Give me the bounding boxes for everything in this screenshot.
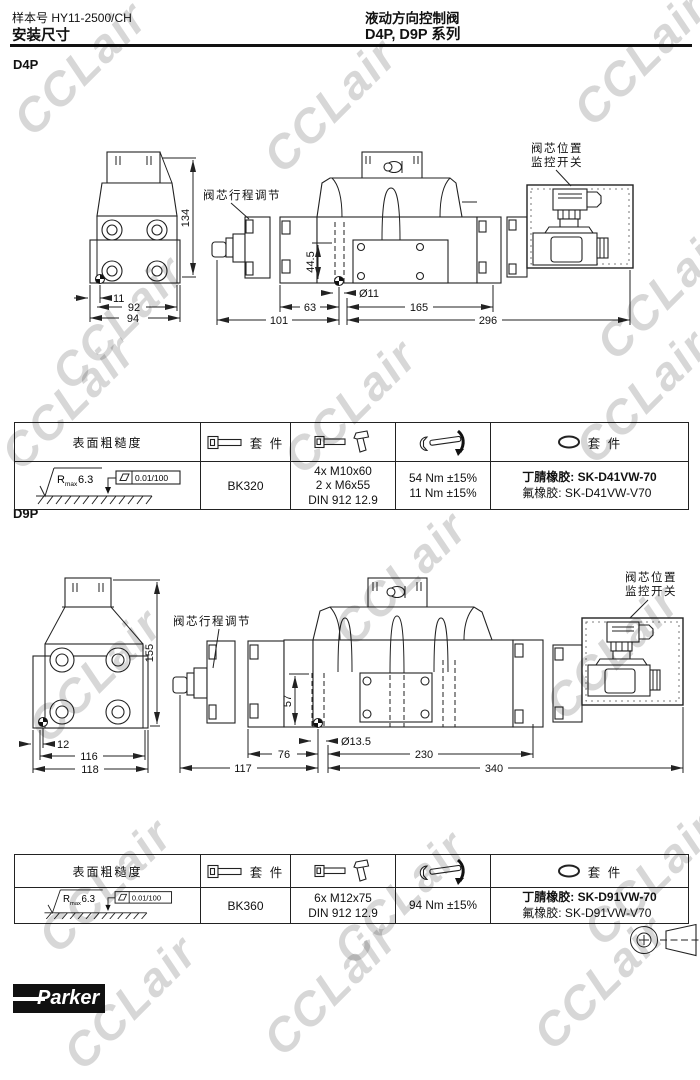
cell-roughness-symbol: R max 6.3 0.01/100 xyxy=(15,888,201,924)
drawing-d4p: 134 11 92 94 阀芯行程调节 xyxy=(0,140,700,332)
roughness-value: 6.3 xyxy=(81,894,94,905)
caliper-icon xyxy=(353,859,373,883)
col-header-torque xyxy=(396,423,491,462)
roughness-sub: max xyxy=(70,901,81,907)
table-data-row: R max 6.3 0.01/100 BK360 6x M12x75 DIN 9… xyxy=(15,888,689,924)
first-angle-projection-icon xyxy=(608,918,700,963)
col-header-roughness-label: 表面粗糙度 xyxy=(72,436,142,450)
dim-label: 117 xyxy=(234,763,252,775)
leader-line xyxy=(630,600,648,618)
screw-icon xyxy=(207,435,243,450)
series-title: D4P, D9P 系列 xyxy=(365,23,460,44)
dim-label: 340 xyxy=(485,763,503,775)
section-label-d4p: D4P xyxy=(13,57,38,72)
annotation-switch-line2: 监控开关 xyxy=(531,155,583,169)
col-header-torque xyxy=(396,855,491,888)
dim-label: Ø11 xyxy=(359,288,379,300)
surface-roughness-symbol: R max 6.3 0.01/100 xyxy=(28,463,188,505)
annotation-stroke-adjust: 阀芯行程调节 xyxy=(203,188,281,202)
col-header-screws xyxy=(291,855,396,888)
datum-mark xyxy=(96,275,105,284)
watermark-text: CCLair xyxy=(562,0,700,136)
d9p-stroke-adjuster xyxy=(173,641,235,723)
col-header-screws xyxy=(291,423,396,462)
seal-fkm: 氟橡胶: SK-D41VW-V70 xyxy=(522,486,651,500)
col-header-roughness-label: 表面粗糙度 xyxy=(72,865,142,879)
seal-nbr: 丁腈橡胶: SK-D41VW-70 xyxy=(522,470,656,484)
dim-label: 118 xyxy=(81,764,99,776)
cell-torque: 94 Nm ±15% xyxy=(396,888,491,924)
leader-line xyxy=(231,203,249,219)
annotation-switch-line1: 阀芯位置 xyxy=(625,570,677,584)
datum-mark xyxy=(335,277,344,286)
cell-bolt-kit: BK360 xyxy=(201,888,291,924)
dim-label: 134 xyxy=(180,209,192,227)
torque-wrench-icon xyxy=(416,858,470,885)
torque-spec: 54 Nm ±15% xyxy=(398,471,488,485)
col-header-roughness: 表面粗糙度 xyxy=(15,855,201,888)
dim-label: 63 xyxy=(304,302,316,314)
screw-spec: 2 x M6x55 xyxy=(293,478,393,492)
dim-label: 12 xyxy=(57,739,69,751)
cell-screws: 6x M12x75 DIN 912 12.9 xyxy=(291,888,396,924)
torque-spec: 94 Nm ±15% xyxy=(398,898,488,912)
roughness-r: R xyxy=(63,894,70,905)
screw-icon xyxy=(314,435,346,449)
roughness-sub: max xyxy=(65,481,78,488)
d4p-position-switch xyxy=(507,185,633,277)
col-header-roughness: 表面粗糙度 xyxy=(15,423,201,462)
dim-label: 296 xyxy=(479,315,497,327)
seal-nbr: 丁腈橡胶: SK-D91VW-70 xyxy=(522,890,656,904)
header-rule xyxy=(10,44,692,47)
surface-roughness-symbol: R max 6.3 0.01/100 xyxy=(33,889,183,919)
col-header-bolt-kit: 套 件 xyxy=(201,423,291,462)
roughness-value: 6.3 xyxy=(78,474,93,486)
col-header-seal-kit: 套 件 xyxy=(491,423,689,462)
datum-mark xyxy=(314,719,323,728)
dim-label: 116 xyxy=(80,751,98,763)
watermark-text: CCLair xyxy=(252,910,408,1066)
table-d4p: 表面粗糙度 套 件 xyxy=(14,422,689,510)
table-d9p: 表面粗糙度 套 件 xyxy=(14,854,689,924)
table-header-row: 表面粗糙度 套 件 xyxy=(15,423,689,462)
drawing-d9p: 155 12 116 118 阀芯行程调节 xyxy=(0,565,700,780)
dim-label: 44.5 xyxy=(305,251,317,272)
d4p-stroke-adjuster xyxy=(212,217,270,278)
page-title: 安装尺寸 xyxy=(12,24,70,45)
flatness-value: 0.01/100 xyxy=(131,893,160,902)
torque-wrench-icon xyxy=(416,429,470,456)
dim-label: 230 xyxy=(415,749,433,761)
screw-spec: DIN 912 12.9 xyxy=(293,493,393,507)
annotation-stroke-adjust: 阀芯行程调节 xyxy=(173,614,251,628)
d9p-position-switch xyxy=(553,618,683,722)
col-header-seal-kit: 套 件 xyxy=(491,855,689,888)
oring-icon xyxy=(557,435,581,449)
flatness-value: 0.01/100 xyxy=(135,473,168,483)
cell-roughness-symbol: R max 6.3 0.01/100 xyxy=(15,462,201,510)
kit-label: 套 件 xyxy=(250,862,284,881)
dim-label: 165 xyxy=(410,302,428,314)
dim-label: 57 xyxy=(282,695,294,707)
dim-label: 155 xyxy=(144,644,156,662)
dim-label: 76 xyxy=(278,749,290,761)
cell-torque: 54 Nm ±15% 11 Nm ±15% xyxy=(396,462,491,510)
table-header-row: 表面粗糙度 套 件 xyxy=(15,855,689,888)
screw-spec: DIN 912 12.9 xyxy=(293,906,393,920)
torque-spec: 11 Nm ±15% xyxy=(398,486,488,500)
cell-screws: 4x M10x60 2 x M6x55 DIN 912 12.9 xyxy=(291,462,396,510)
caliper-icon xyxy=(353,430,373,454)
dim-label: Ø13.5 xyxy=(341,736,371,748)
annotation-switch-line1: 阀芯位置 xyxy=(531,141,583,155)
kit-label: 套 件 xyxy=(588,862,622,881)
screw-spec: 4x M10x60 xyxy=(293,464,393,478)
screw-icon xyxy=(207,864,243,879)
d9p-end-view xyxy=(33,578,148,728)
annotation-switch-line2: 监控开关 xyxy=(625,584,677,598)
parker-logo-text: Parker xyxy=(37,987,99,1010)
kit-label: 套 件 xyxy=(250,433,284,452)
screw-spec: 6x M12x75 xyxy=(293,891,393,905)
col-header-bolt-kit: 套 件 xyxy=(201,855,291,888)
table-data-row: R max 6.3 0.01/100 BK320 4x M10x60 2 x M… xyxy=(15,462,689,510)
dim-label: 11 xyxy=(113,293,124,305)
roughness-r: R xyxy=(57,474,65,486)
parker-logo: Parker xyxy=(13,984,105,1013)
dim-label: 101 xyxy=(270,315,288,327)
screw-icon xyxy=(314,864,346,878)
datasheet-page: { "header": { "catalog_label": "样本号 HY11… xyxy=(0,0,700,1019)
cell-bolt-kit: BK320 xyxy=(201,462,291,510)
d4p-end-view xyxy=(90,152,180,284)
leader-line xyxy=(556,170,571,186)
datum-mark xyxy=(39,718,48,727)
oring-icon xyxy=(557,864,581,878)
kit-label: 套 件 xyxy=(588,433,622,452)
cell-seal-kit: 丁腈橡胶: SK-D41VW-70 氟橡胶: SK-D41VW-V70 xyxy=(491,462,689,510)
dim-label: 94 xyxy=(127,313,139,325)
